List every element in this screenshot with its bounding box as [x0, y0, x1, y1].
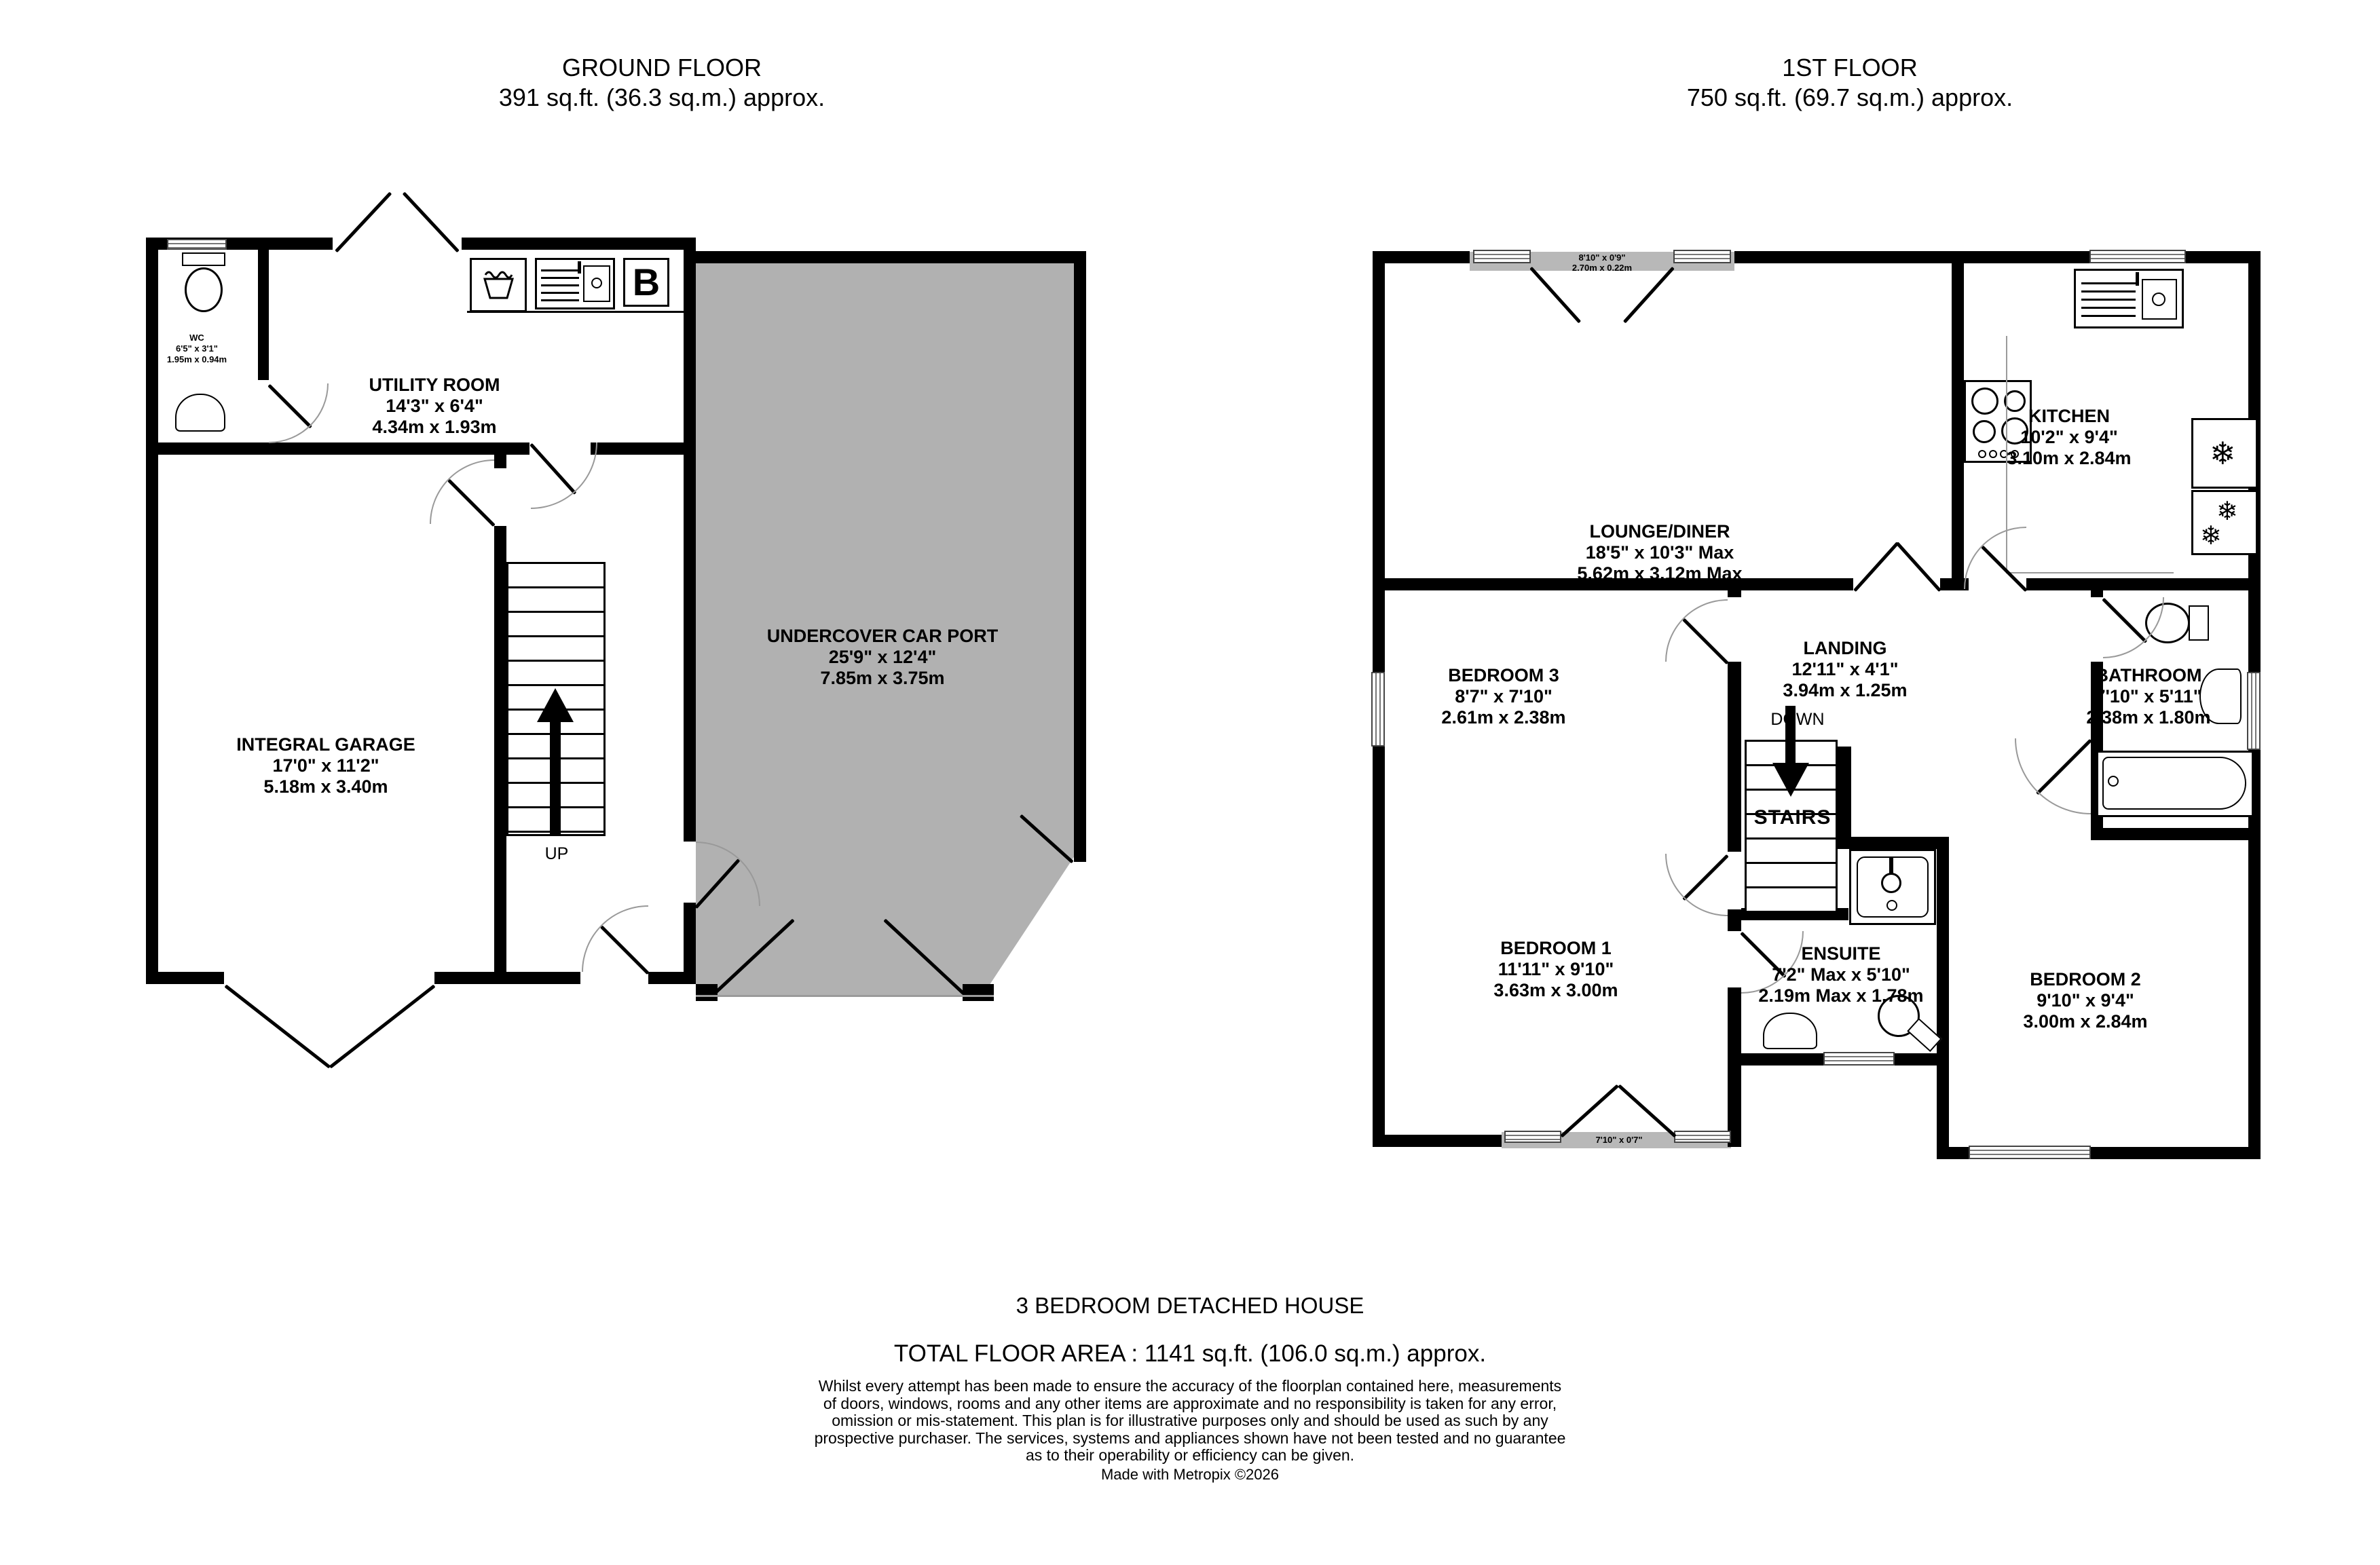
wall: [258, 250, 269, 380]
room-size-metric: 3.94m x 1.25m: [1709, 680, 1981, 701]
bedroom1-balcony-label: 7'10" x 0'7": [1548, 1135, 1690, 1145]
bedroom1-window-right: [1674, 1131, 1731, 1143]
wall: [1734, 251, 2089, 263]
counter-edge: [467, 311, 684, 313]
door-leaf: [1896, 542, 1941, 592]
ground-floor-title-line2: 391 sq.ft. (36.3 sq.m.) approx.: [356, 83, 967, 113]
wall: [684, 251, 1086, 263]
room-size-metric: 2.61m x 2.38m: [1368, 707, 1639, 728]
room-name: BATHROOM: [2026, 665, 2271, 686]
room-size-imperial: 7'10" x 5'11": [2026, 686, 2271, 707]
balcony-size-imperial: 8'10" x 0'9": [1531, 252, 1673, 263]
wall: [146, 442, 529, 455]
door-arc: [531, 442, 597, 509]
lounge-room-label: LOUNGE/DINER 18'5" x 10'3" Max 5.62m x 3…: [1524, 521, 1796, 584]
room-name: BEDROOM 2: [1950, 969, 2221, 990]
shower-icon: [1849, 849, 1936, 925]
room-name: WC: [139, 333, 255, 343]
floorplan-page: { "ground_floor": { "title": "GROUND FLO…: [0, 0, 2380, 1565]
wall: [1741, 1053, 1823, 1066]
toilet-bowl-icon: [185, 267, 223, 312]
wall: [591, 442, 684, 455]
french-door-leaf: [1529, 267, 1581, 324]
fridge-icon: ❄: [2191, 418, 2258, 489]
garage-room-label: INTEGRAL GARAGE 17'0" x 11'2" 5.18m x 3.…: [190, 734, 462, 797]
room-size-metric: 3.63m x 3.00m: [1420, 980, 1692, 1001]
french-door-leaf: [1618, 1085, 1677, 1138]
ensuite-window: [1823, 1052, 1895, 1066]
room-size-metric: 3.10m x 2.84m: [1967, 448, 2171, 469]
washing-machine-icon: [470, 258, 527, 312]
bedroom2-window: [1969, 1146, 2091, 1159]
room-size-imperial: 18'5" x 10'3" Max: [1524, 542, 1796, 563]
room-name: UNDERCOVER CAR PORT: [747, 626, 1018, 647]
door-leaf: [1853, 542, 1899, 592]
wall: [2091, 590, 2103, 597]
room-name: ENSUITE: [1719, 943, 1963, 964]
wall: [1952, 251, 1964, 578]
room-size-imperial: 12'11" x 4'1": [1709, 659, 1981, 680]
french-door-leaf: [1560, 1085, 1619, 1138]
metropix-credit: Made with Metropix ©2026: [647, 1466, 1733, 1484]
french-door-leaf: [1623, 267, 1675, 324]
total-floor-area: TOTAL FLOOR AREA : 1141 sq.ft. (106.0 sq…: [647, 1340, 1733, 1368]
balcony-size-imperial: 7'10" x 0'7": [1548, 1135, 1690, 1145]
door-arc: [1964, 527, 2026, 589]
ground-floor-title: GROUND FLOOR 391 sq.ft. (36.3 sq.m.) app…: [356, 53, 967, 113]
wall: [494, 526, 506, 972]
ground-floor-title-line1: GROUND FLOOR: [356, 53, 967, 83]
boiler-icon: B: [623, 258, 669, 307]
wall: [462, 238, 684, 250]
lounge-window-right: [1673, 250, 1731, 263]
wall: [1836, 837, 1949, 849]
first-floor-title-line2: 750 sq.ft. (69.7 sq.m.) approx.: [1544, 83, 2155, 113]
room-size-imperial: 11'11" x 9'10": [1420, 959, 1692, 980]
door-arc: [1665, 854, 1728, 916]
room-size-metric: 2.19m Max x 1.78m: [1719, 985, 1963, 1006]
carport-threshold: [696, 995, 994, 997]
wall: [494, 455, 506, 468]
wall: [1373, 747, 1385, 1147]
room-size-metric: 5.18m x 3.40m: [190, 776, 462, 797]
french-door-leaf: [335, 191, 392, 252]
first-floor-title: 1ST FLOOR 750 sq.ft. (69.7 sq.m.) approx…: [1544, 53, 2155, 113]
balcony-size-metric: 2.70m x 0.22m: [1531, 263, 1673, 273]
room-name: UTILITY ROOM: [299, 375, 570, 396]
room-name: BEDROOM 3: [1368, 665, 1639, 686]
room-size-metric: 7.85m x 3.75m: [747, 668, 1018, 689]
door-arc: [2015, 738, 2091, 814]
wall: [1728, 909, 1741, 931]
kitchen-sink-icon: [2074, 269, 2184, 328]
wall: [1373, 1135, 1502, 1147]
stairs-arrow-stem: [550, 721, 561, 836]
wall: [2026, 578, 2261, 590]
room-size-imperial: 8'7" x 7'10": [1368, 686, 1639, 707]
door-arc: [430, 459, 494, 524]
bath-icon: [2096, 751, 2254, 817]
bedroom1-room-label: BEDROOM 1 11'11" x 9'10" 3.63m x 3.00m: [1420, 938, 1692, 1001]
room-name: INTEGRAL GARAGE: [190, 734, 462, 755]
wall: [2091, 1147, 2261, 1159]
room-size-imperial: 10'2" x 9'4": [1967, 427, 2171, 448]
lounge-window-left: [1473, 250, 1531, 263]
wall: [684, 238, 696, 842]
boiler-label: B: [633, 261, 660, 303]
lounge-balcony-label: 8'10" x 0'9" 2.70m x 0.22m: [1531, 252, 1673, 273]
wc-room-label: WC 6'5" x 3'1" 1.95m x 0.94m: [139, 333, 255, 365]
room-size-imperial: 17'0" x 11'2": [190, 755, 462, 776]
ensuite-room-label: ENSUITE 7'2" Max x 5'10" 2.19m Max x 1.7…: [1719, 943, 1963, 1006]
room-size-imperial: 14'3" x 6'4": [299, 396, 570, 417]
room-name: LANDING: [1709, 638, 1981, 659]
wall: [1074, 251, 1086, 862]
landing-room-label: LANDING 12'11" x 4'1" 3.94m x 1.25m: [1709, 638, 1981, 701]
wall: [1728, 987, 1741, 1147]
french-door-leaf: [403, 191, 460, 252]
room-size-metric: 3.00m x 2.84m: [1950, 1011, 2221, 1032]
wall: [963, 984, 994, 1001]
garage-door-leaf: [224, 985, 331, 1069]
utility-sink-icon: [535, 258, 615, 309]
wc-window: [167, 239, 227, 250]
wall: [1728, 590, 1741, 597]
first-floor-title-line1: 1ST FLOOR: [1544, 53, 2155, 83]
wall: [2091, 828, 2261, 840]
up-label: UP: [523, 844, 591, 864]
wall: [684, 903, 696, 984]
room-size-imperial: 6'5" x 3'1": [139, 343, 255, 354]
bedroom3-room-label: BEDROOM 3 8'7" x 7'10" 2.61m x 2.38m: [1368, 665, 1639, 728]
carport-room-label: UNDERCOVER CAR PORT 25'9" x 12'4" 7.85m …: [747, 626, 1018, 689]
freezer-icon: ❄ ❄: [2191, 490, 2258, 555]
toilet-icon: [182, 252, 225, 266]
door-arc: [2103, 597, 2164, 658]
room-size-metric: 1.95m x 0.94m: [139, 354, 255, 365]
bedroom2-room-label: BEDROOM 2 9'10" x 9'4" 3.00m x 2.84m: [1950, 969, 2221, 1032]
bedroom1-window-left: [1504, 1131, 1561, 1143]
counter-edge: [2006, 572, 2174, 573]
room-name: LOUNGE/DINER: [1524, 521, 1796, 542]
room-size-metric: 2.38m x 1.80m: [2026, 707, 2271, 728]
room-size-imperial: 9'10" x 9'4": [1950, 990, 2221, 1011]
kitchen-room-label: KITCHEN 10'2" x 9'4" 3.10m x 2.84m: [1967, 406, 2171, 469]
room-size-metric: 5.62m x 3.12m Max: [1524, 563, 1796, 584]
wall: [434, 972, 580, 984]
property-type: 3 BEDROOM DETACHED HOUSE: [647, 1293, 1733, 1319]
wall: [146, 972, 224, 984]
door-arc: [582, 905, 648, 972]
ensuite-basin-icon: [1763, 1013, 1817, 1049]
room-name: KITCHEN: [1967, 406, 2171, 427]
room-size-imperial: 7'2" Max x 5'10": [1719, 964, 1963, 985]
wall: [1373, 251, 1385, 672]
stairs-up-arrow-icon: [537, 688, 574, 722]
stairs-label: STAIRS: [1736, 806, 1848, 829]
toilet-cistern-icon: [2189, 605, 2209, 641]
down-label: DOWN: [1757, 710, 1838, 730]
garage-door-leaf: [329, 985, 436, 1069]
kitchen-window: [2089, 250, 2186, 263]
room-name: BEDROOM 1: [1420, 938, 1692, 959]
basin-icon: [175, 394, 225, 432]
stairs-down-arrow-icon: [1772, 763, 1809, 797]
bathroom-room-label: BATHROOM 7'10" x 5'11" 2.38m x 1.80m: [2026, 665, 2271, 728]
disclaimer-text: Whilst every attempt has been made to en…: [647, 1378, 1733, 1465]
room-size-imperial: 25'9" x 12'4": [747, 647, 1018, 668]
room-size-metric: 4.34m x 1.93m: [299, 417, 570, 438]
utility-room-label: UTILITY ROOM 14'3" x 6'4" 4.34m x 1.93m: [299, 375, 570, 438]
wall: [1373, 251, 1470, 263]
